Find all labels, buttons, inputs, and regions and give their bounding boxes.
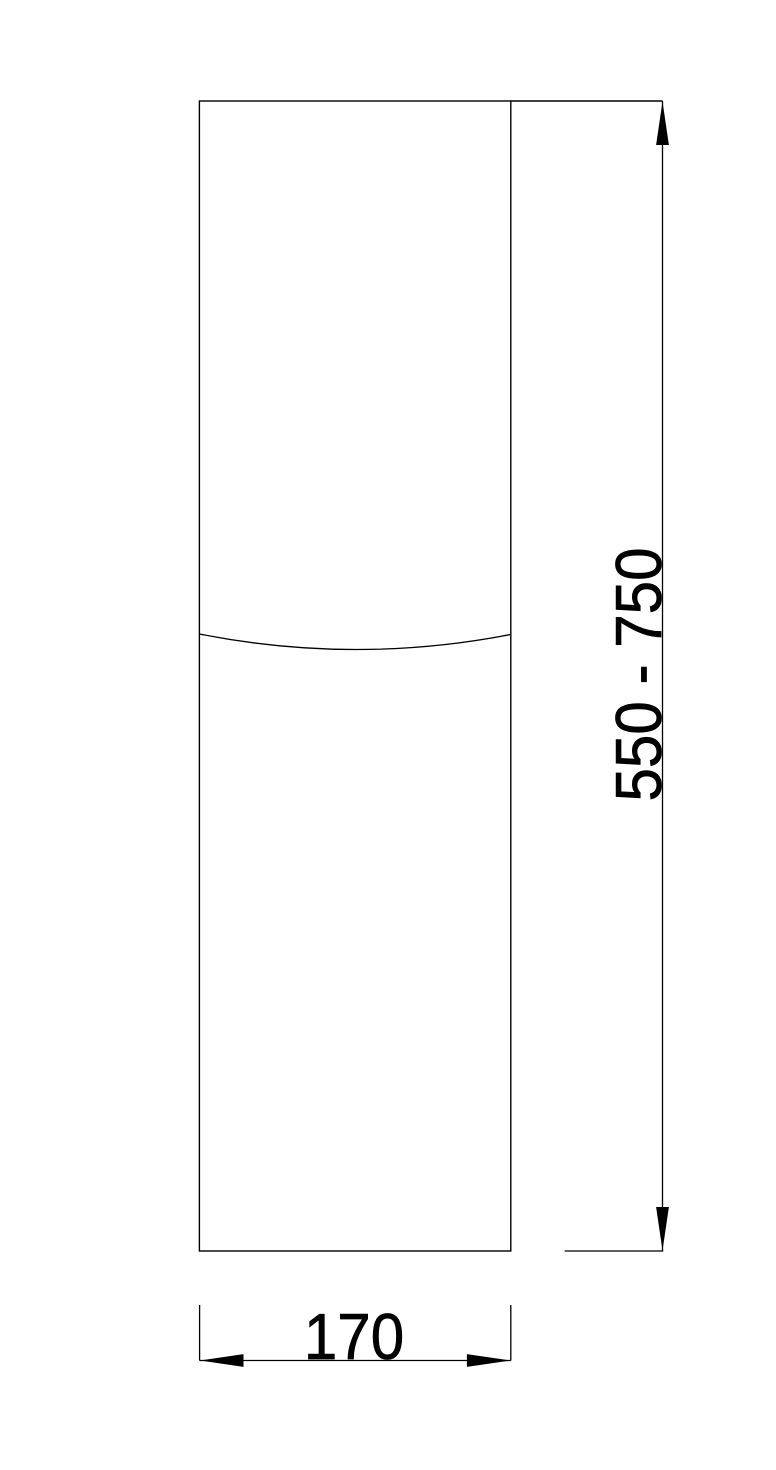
svg-text:170: 170 [304,1301,404,1374]
svg-text:550 - 750: 550 - 750 [603,547,676,801]
